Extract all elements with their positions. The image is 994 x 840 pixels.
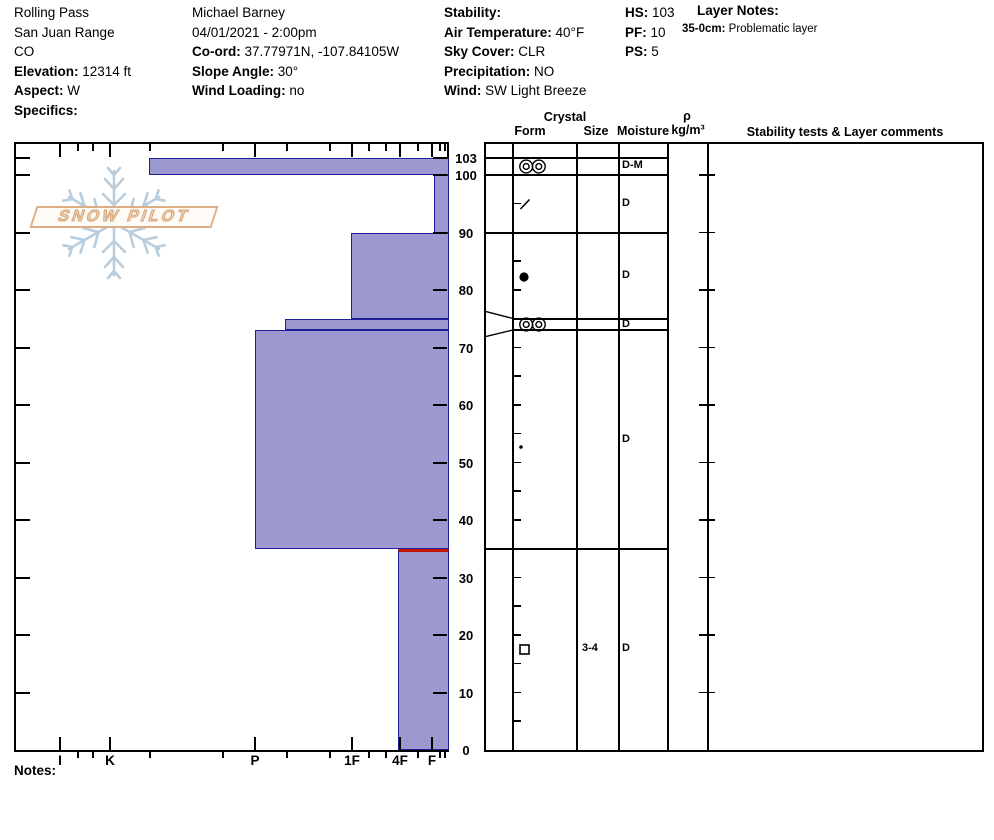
density-col-tick-10 xyxy=(699,692,715,694)
hardness-tick-bottom-minor xyxy=(149,752,151,758)
hardness-label-F: F xyxy=(415,753,449,768)
hardness-tick-bottom-minor xyxy=(222,752,224,758)
hardness-tick-top-major xyxy=(431,144,433,157)
form-col-tick-85 xyxy=(512,260,521,262)
moisture-value: D xyxy=(622,197,630,209)
grain-form-icon-faceted-crystals xyxy=(518,643,531,656)
header-line: PS: 5 xyxy=(625,42,675,62)
depth-tick-left-80 xyxy=(16,289,30,291)
depth-tick-left-103 xyxy=(16,157,30,159)
grain-form-icon-decomposing-fragments xyxy=(518,197,532,211)
hardness-tick-top-minor xyxy=(368,144,370,151)
density-col-tick-80 xyxy=(699,289,715,291)
depth-tick-left-100 xyxy=(16,174,30,176)
form-col-tick-35 xyxy=(512,548,521,550)
depth-tick-right-20 xyxy=(433,634,447,636)
layer-bar-100-90cm xyxy=(434,175,449,233)
hardness-tick-top-minor xyxy=(222,144,224,151)
hardness-tick-top-minor xyxy=(92,144,94,151)
layer-notes-title: Layer Notes: xyxy=(697,3,779,18)
table-frame xyxy=(484,142,984,752)
hardness-tick-bottom-major xyxy=(59,737,61,750)
depth-tick-right-100 xyxy=(433,174,447,176)
depth-tick-right-90 xyxy=(433,232,447,234)
hardness-tick-bottom-major xyxy=(254,737,256,750)
header-column-snowpack: HS: 103PF: 10PS: 5 xyxy=(625,3,675,62)
form-symbol-decomposing-fragments xyxy=(518,197,532,216)
header-line: CO xyxy=(14,42,131,62)
header-line: Sky Cover: CLR xyxy=(444,42,586,62)
density-col-tick-100 xyxy=(699,174,715,176)
depth-tick-right-60 xyxy=(433,404,447,406)
header-column-conditions: Stability:Air Temperature: 40°FSky Cover… xyxy=(444,3,586,101)
hardness-tick-top-minor xyxy=(149,144,151,151)
form-symbol-melt-freeze-crust xyxy=(518,316,548,338)
moisture-value: D xyxy=(622,269,630,281)
form-col-tick-90 xyxy=(512,232,521,234)
density-col-tick-70 xyxy=(699,347,715,349)
grain-form-icon-rounded-grains xyxy=(518,271,530,283)
table-column-line-4 xyxy=(707,142,709,750)
grain-form-icon-melt-freeze-crust xyxy=(518,316,548,333)
depth-label-70: 70 xyxy=(451,341,481,356)
header-line: San Juan Range xyxy=(14,23,131,43)
form-col-tick-55 xyxy=(512,433,521,435)
header-line: Specifics: xyxy=(14,101,131,121)
form-symbol-faceted-crystals xyxy=(518,643,531,661)
header-line: Wind: SW Light Breeze xyxy=(444,81,586,101)
hardness-tick-top-minor xyxy=(417,144,419,151)
depth-tick-right-70 xyxy=(433,347,447,349)
header-line: Wind Loading: no xyxy=(192,81,399,101)
header-line: Slope Angle: 30° xyxy=(192,62,399,82)
hardness-tick-bottom-major xyxy=(399,737,401,750)
density-col-tick-20 xyxy=(699,634,715,636)
form-col-tick-5 xyxy=(512,720,521,722)
form-col-tick-50 xyxy=(512,462,521,464)
form-col-tick-60 xyxy=(512,404,521,406)
grain-size-value: 3-4 xyxy=(582,642,598,654)
hardness-tick-top-minor xyxy=(444,144,446,151)
hardness-tick-top-major xyxy=(59,144,61,157)
header-line: Co-ord: 37.77971N, -107.84105W xyxy=(192,42,399,62)
depth-tick-right-30 xyxy=(433,577,447,579)
form-col-tick-25 xyxy=(512,605,521,607)
header-line: Elevation: 12314 ft xyxy=(14,62,131,82)
depth-tick-left-40 xyxy=(16,519,30,521)
form-col-tick-20 xyxy=(512,634,521,636)
depth-tick-right-50 xyxy=(433,462,447,464)
form-symbol-rounded-grains xyxy=(518,270,530,288)
moisture-value: D xyxy=(622,642,630,654)
hardness-tick-bottom-major xyxy=(431,737,433,750)
table-header-density-symbol: ρ xyxy=(683,109,691,123)
layer-bar-75-73cm xyxy=(285,319,449,331)
layer-of-concern-marker xyxy=(484,305,514,341)
depth-label-20: 20 xyxy=(451,628,481,643)
depth-label-0: 0 xyxy=(451,743,481,758)
hardness-label-K: K xyxy=(93,753,127,768)
hardness-tick-top-minor xyxy=(77,144,79,151)
form-col-tick-40 xyxy=(512,519,521,521)
depth-tick-left-70 xyxy=(16,347,30,349)
header-line: HS: 103 xyxy=(625,3,675,23)
depth-tick-left-10 xyxy=(16,692,30,694)
header-line: 04/01/2021 - 2:00pm xyxy=(192,23,399,43)
hardness-tick-bottom-minor xyxy=(77,752,79,758)
table-header-size: Size xyxy=(583,124,608,138)
snowpilot-profile-report: SNOW PILOT Rolling PassSan Juan RangeCOE… xyxy=(0,0,994,840)
layer-bar-90-75cm xyxy=(351,233,449,319)
form-col-tick-30 xyxy=(512,577,521,579)
hardness-tick-top-minor xyxy=(385,144,387,151)
depth-tick-left-20 xyxy=(16,634,30,636)
density-col-tick-30 xyxy=(699,577,715,579)
depth-tick-right-80 xyxy=(433,289,447,291)
depth-tick-left-30 xyxy=(16,577,30,579)
header-column-observer: Michael Barney04/01/2021 - 2:00pmCo-ord:… xyxy=(192,3,399,101)
form-col-tick-15 xyxy=(512,663,521,665)
table-header-form: Form xyxy=(514,124,545,138)
header-line: Aspect: W xyxy=(14,81,131,101)
depth-label-100: 100 xyxy=(451,168,481,183)
layer-bar-73-35cm xyxy=(255,330,449,549)
layer-bar-35-0cm xyxy=(398,549,449,750)
table-header-comments: Stability tests & Layer comments xyxy=(747,125,944,139)
table-header-crystal-group: Crystal xyxy=(544,110,586,124)
header-line: Rolling Pass xyxy=(14,3,131,23)
form-col-tick-70 xyxy=(512,347,521,349)
hardness-tick-bottom-major xyxy=(109,737,111,750)
hardness-tick-top-major xyxy=(351,144,353,157)
density-col-tick-40 xyxy=(699,519,715,521)
moisture-value: D xyxy=(622,433,630,445)
depth-tick-right-10 xyxy=(433,692,447,694)
header-line: Michael Barney xyxy=(192,3,399,23)
hardness-tick-top-minor xyxy=(286,144,288,151)
hardness-tick-top-major xyxy=(399,144,401,157)
form-col-tick-45 xyxy=(512,490,521,492)
depth-label-90: 90 xyxy=(451,226,481,241)
density-col-tick-60 xyxy=(699,404,715,406)
depth-label-30: 30 xyxy=(451,571,481,586)
hardness-label-1F: 1F xyxy=(335,753,369,768)
hardness-tick-top-minor xyxy=(329,144,331,151)
depth-tick-left-60 xyxy=(16,404,30,406)
form-symbol-rounded-grains-small xyxy=(518,437,524,455)
hardness-label-P: P xyxy=(238,753,272,768)
moisture-value: D xyxy=(622,318,630,330)
moisture-value: D-M xyxy=(622,159,643,171)
table-column-line-3 xyxy=(667,142,669,750)
grain-form-icon-melt-freeze-crust xyxy=(518,158,548,175)
depth-label-10: 10 xyxy=(451,686,481,701)
depth-tick-right-40 xyxy=(433,519,447,521)
density-col-tick-50 xyxy=(699,462,715,464)
depth-label-50: 50 xyxy=(451,456,481,471)
depth-tick-left-50 xyxy=(16,462,30,464)
density-col-tick-90 xyxy=(699,232,715,234)
header-line: Stability: xyxy=(444,3,586,23)
hardness-tick-bottom-minor xyxy=(286,752,288,758)
hardness-tick-top-major xyxy=(109,144,111,157)
hardness-tick-bottom-minor xyxy=(329,752,331,758)
table-header-density-unit: kg/m³ xyxy=(671,123,704,137)
layer-note-entry: 35-0cm: Problematic layer xyxy=(682,23,818,35)
depth-tick-right-103 xyxy=(433,157,447,159)
form-col-tick-10 xyxy=(512,692,521,694)
notes-label: Notes: xyxy=(14,763,56,778)
hardness-tick-top-minor xyxy=(439,144,441,151)
hardness-label-4F: 4F xyxy=(383,753,417,768)
header-line: PF: 10 xyxy=(625,23,675,43)
header-column-location: Rolling PassSan Juan RangeCOElevation: 1… xyxy=(14,3,131,120)
depth-label-80: 80 xyxy=(451,283,481,298)
depth-label-40: 40 xyxy=(451,513,481,528)
form-symbol-melt-freeze-crust xyxy=(518,158,548,180)
form-col-tick-65 xyxy=(512,375,521,377)
layer-bar-103-100cm xyxy=(149,158,449,175)
depth-label-60: 60 xyxy=(451,398,481,413)
hardness-tick-top-major xyxy=(254,144,256,157)
header-line: Air Temperature: 40°F xyxy=(444,23,586,43)
grain-form-icon-rounded-grains-small xyxy=(518,444,524,450)
depth-label-103: 103 xyxy=(451,151,481,166)
form-col-tick-80 xyxy=(512,289,521,291)
header-line: Precipitation: NO xyxy=(444,62,586,82)
table-header-moisture: Moisture xyxy=(617,124,669,138)
depth-tick-left-90 xyxy=(16,232,30,234)
hardness-tick-bottom-major xyxy=(351,737,353,750)
